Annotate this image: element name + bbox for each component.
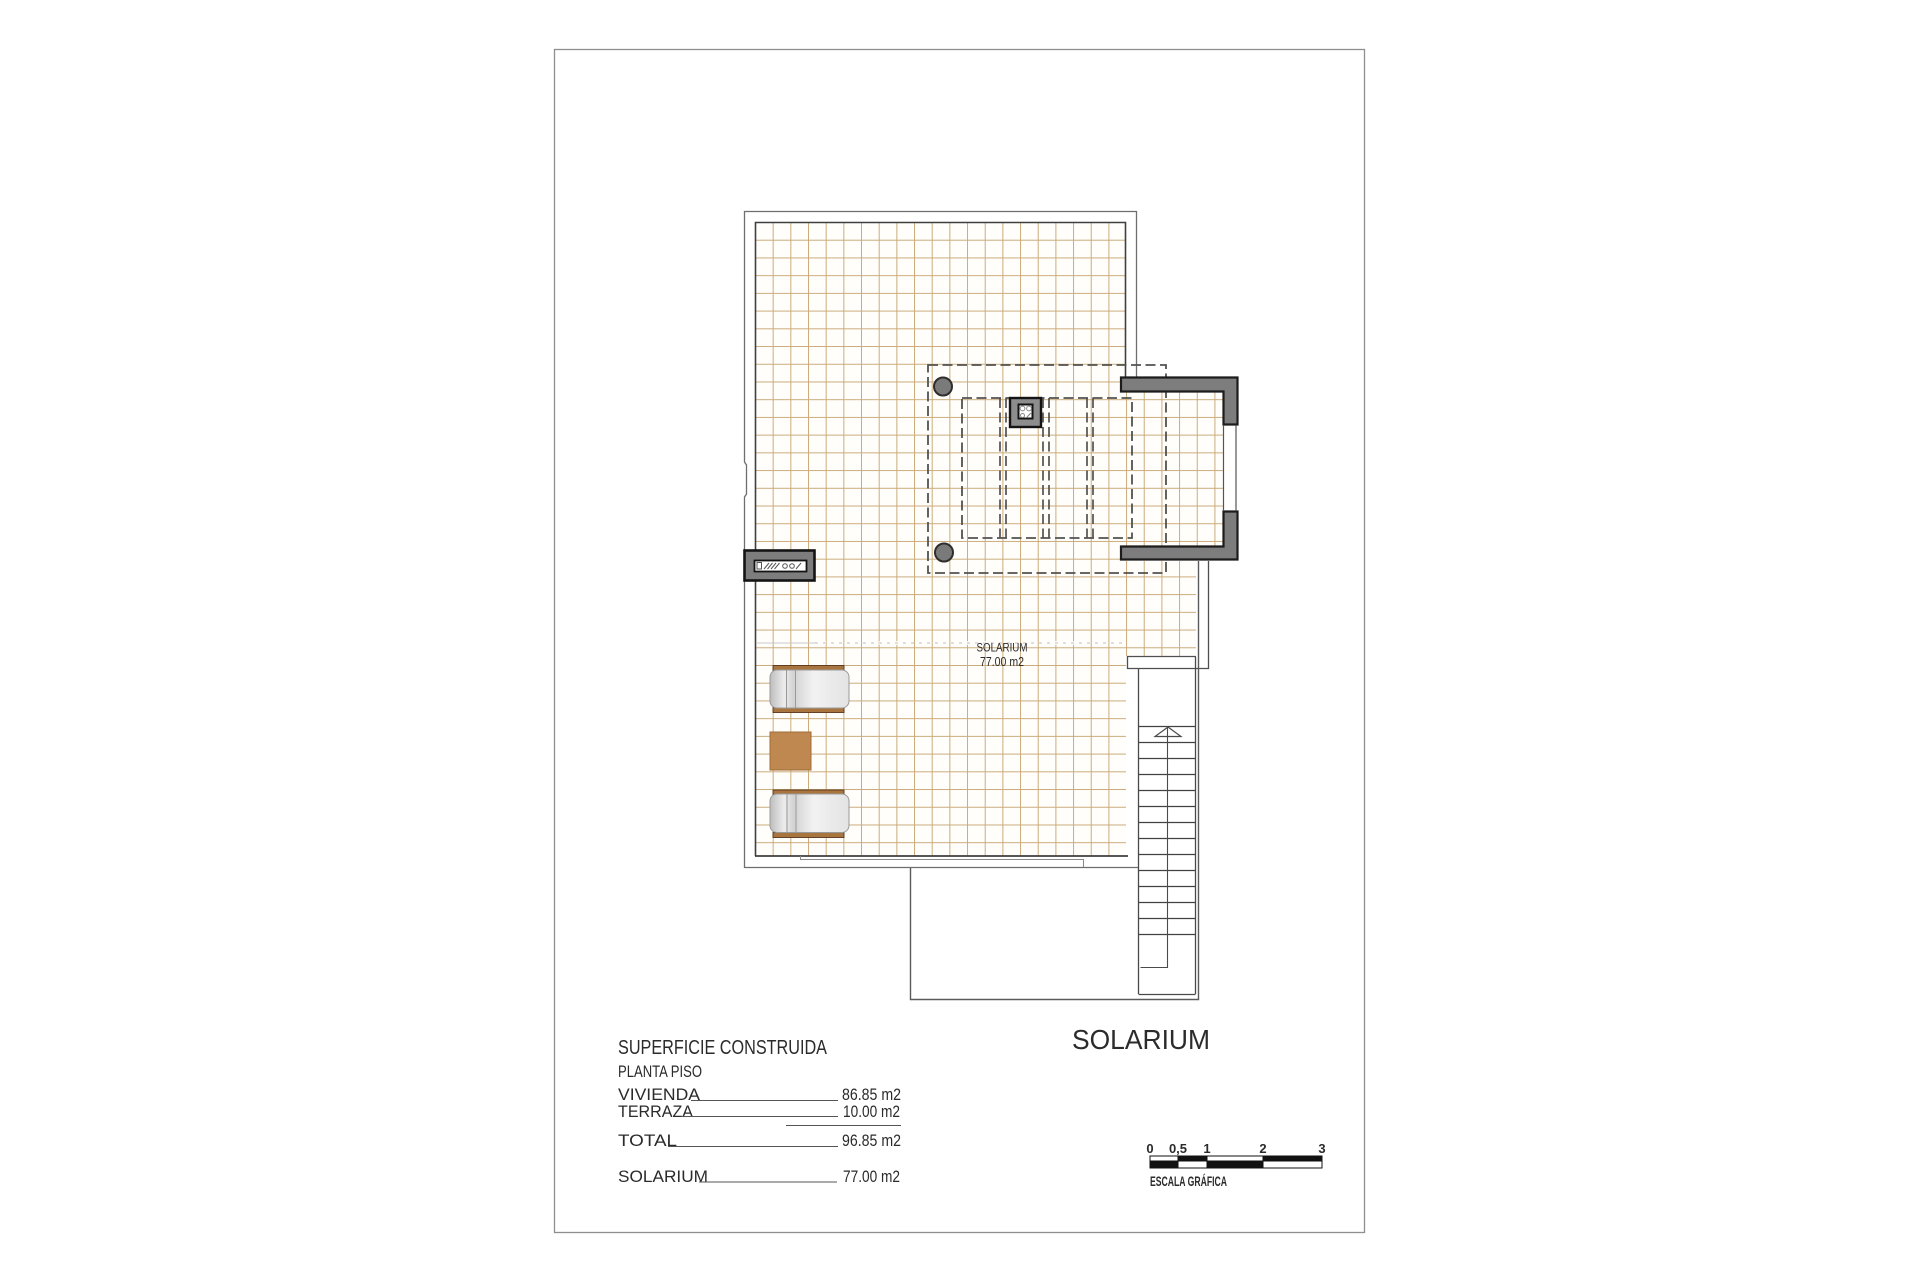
svg-text:77.00 m2: 77.00 m2 bbox=[980, 655, 1024, 669]
svg-text:TOTAL: TOTAL bbox=[618, 1132, 677, 1150]
svg-text:TERRAZA: TERRAZA bbox=[618, 1103, 693, 1121]
svg-text:1: 1 bbox=[1203, 1141, 1210, 1156]
svg-text:10.00 m2: 10.00 m2 bbox=[843, 1103, 900, 1121]
svg-text:SOLARIUM: SOLARIUM bbox=[977, 643, 1028, 655]
svg-text:3: 3 bbox=[1318, 1141, 1325, 1156]
svg-text:2: 2 bbox=[1259, 1141, 1266, 1156]
svg-text:VIVIENDA: VIVIENDA bbox=[618, 1086, 700, 1104]
svg-text:86.85 m2: 86.85 m2 bbox=[842, 1086, 901, 1104]
svg-text:77.00 m2: 77.00 m2 bbox=[843, 1168, 900, 1186]
svg-text:SUPERFICIE CONSTRUIDA: SUPERFICIE CONSTRUIDA bbox=[618, 1036, 827, 1059]
svg-text:96.85 m2: 96.85 m2 bbox=[842, 1132, 901, 1150]
svg-text:SOLARIUM: SOLARIUM bbox=[1072, 1024, 1210, 1055]
svg-text:PLANTA PISO: PLANTA PISO bbox=[618, 1063, 702, 1081]
svg-text:0,5: 0,5 bbox=[1169, 1141, 1187, 1156]
svg-text:0: 0 bbox=[1146, 1141, 1153, 1156]
svg-text:SOLARIUM: SOLARIUM bbox=[618, 1168, 708, 1186]
svg-text:ESCALA GRÁFICA: ESCALA GRÁFICA bbox=[1150, 1174, 1227, 1189]
